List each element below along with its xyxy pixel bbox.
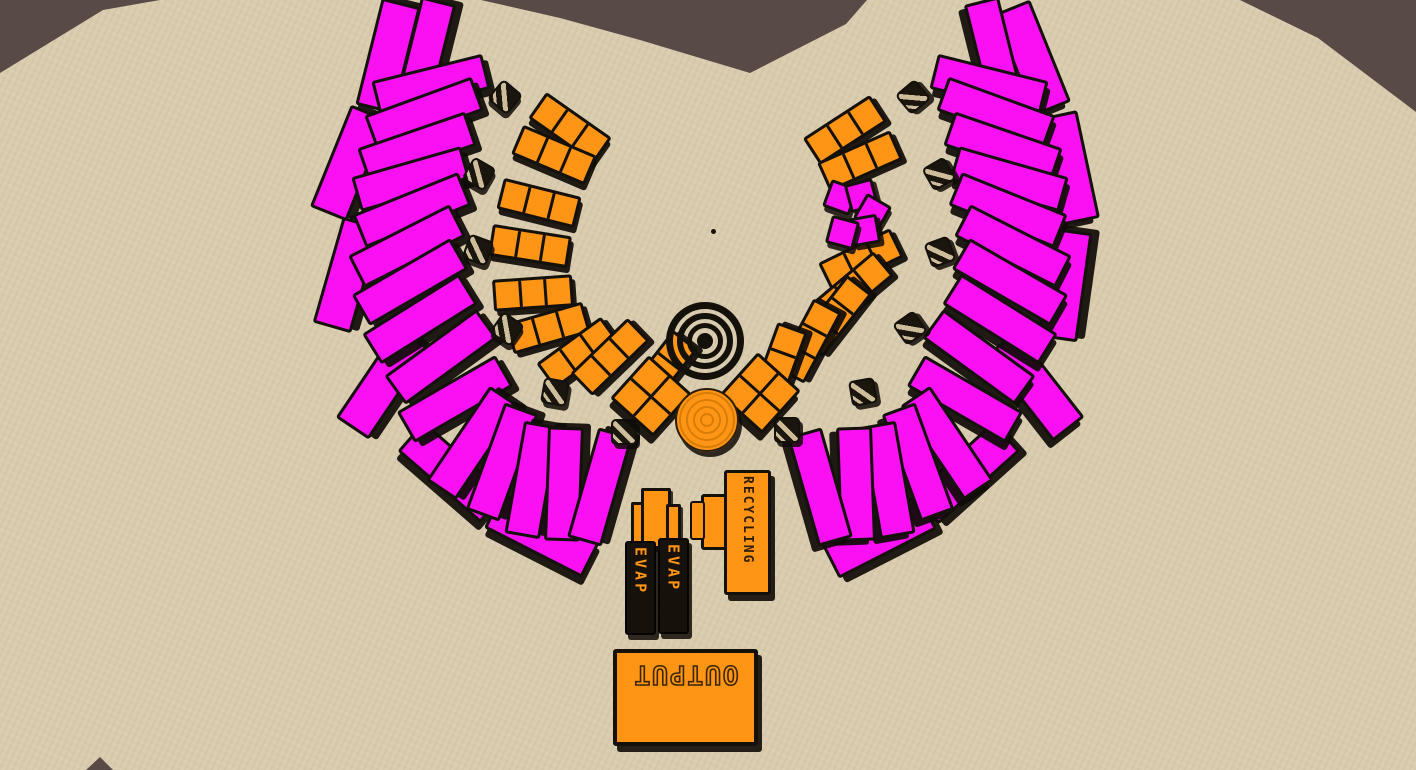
output-building[interactable]: OUTPUT <box>613 649 758 746</box>
recycling-building[interactable]: RECYCLING <box>724 470 771 595</box>
evap-tower[interactable]: EVAP <box>625 541 656 635</box>
recycling-inlet-small[interactable] <box>690 501 705 540</box>
evap-label: EVAP <box>665 544 683 592</box>
output-label: OUTPUT <box>617 659 754 689</box>
recycling-label: RECYCLING <box>740 476 755 588</box>
evap-tower[interactable]: EVAP <box>658 538 689 634</box>
evap-label: EVAP <box>632 547 650 595</box>
